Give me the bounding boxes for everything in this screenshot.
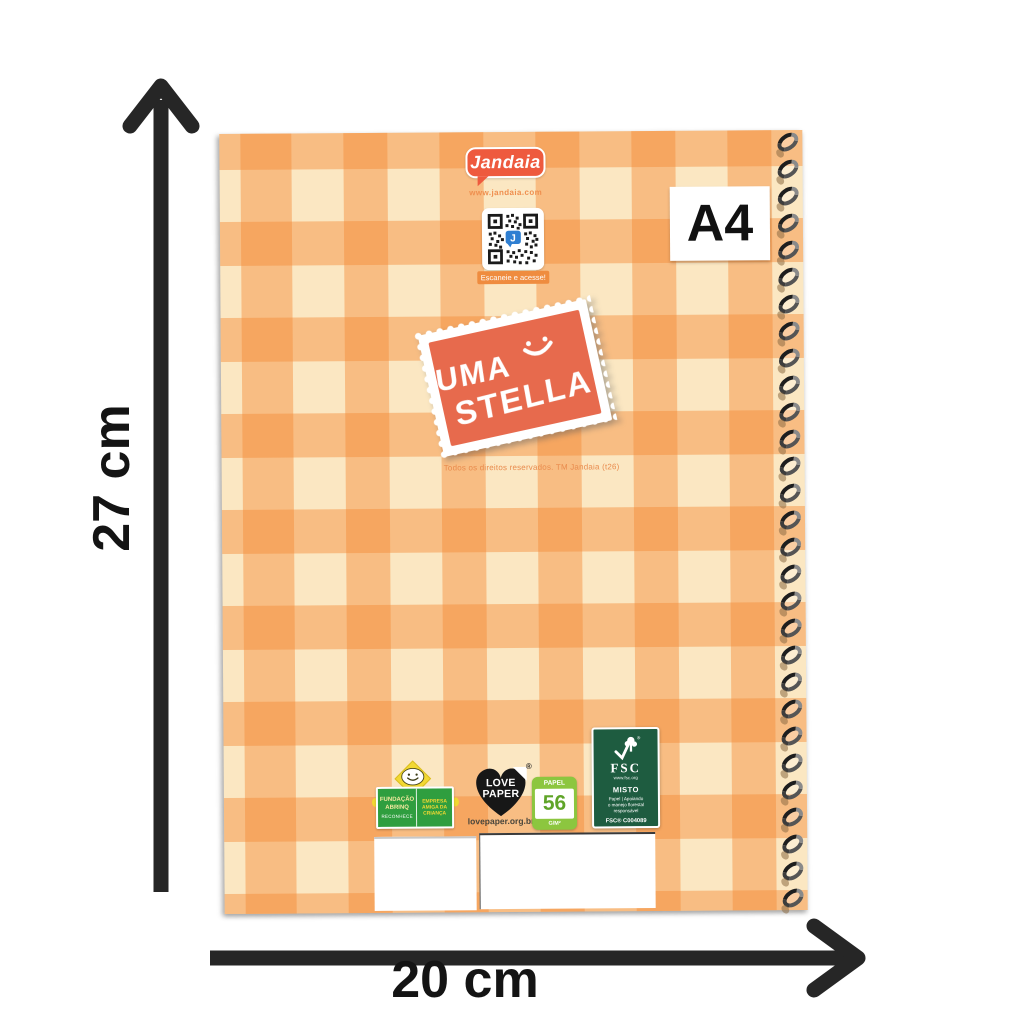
qr-code: J: [482, 208, 544, 270]
abrinq-seal: FUNDAÇÃO ABRINQ RECONHECE EMPRESA AMIGA …: [376, 765, 458, 830]
spiral-coil: [776, 399, 804, 426]
spiral-coil: [775, 318, 803, 345]
fsc-license-code: FSC® C004089: [606, 818, 647, 824]
width-label: 20 cm: [290, 950, 640, 1010]
fsc-description: Papel | Apoiando o manejo florestal resp…: [608, 796, 644, 814]
spiral-coil: [778, 723, 806, 750]
brand-website: www.jandaia.com: [452, 188, 560, 198]
paper-weight-seal: PAPEL 56 G/M²: [532, 777, 577, 830]
spiral-coil: [775, 264, 803, 291]
spiral-coil: [776, 426, 804, 453]
spiral-coil: [778, 750, 806, 777]
fsc-tree-icon: ®: [610, 734, 640, 760]
product-image: 27 cm 20 cm Jandaia www.jandaia.com: [0, 0, 1024, 1024]
love-paper-text: LOVE PAPER: [471, 778, 531, 800]
spiral-coil: [777, 588, 805, 615]
qr-caption: Escaneie e acesse!: [477, 271, 549, 285]
rights-text: Todos os direitos reservados. TM Jandaia…: [380, 462, 684, 473]
spiral-coil: [779, 831, 807, 858]
fsc-desc-line3: responsável: [608, 808, 644, 814]
uma-stella-stamp: UMA STELLA: [418, 299, 613, 457]
paper-weight-unit: G/M²: [535, 819, 574, 828]
spiral-coil: [778, 669, 806, 696]
svg-text:®: ®: [637, 734, 641, 740]
notebook-cover: Jandaia www.jandaia.com: [219, 130, 807, 914]
spiral-coil: [774, 183, 802, 210]
fsc-label: ® FSC www.fsc.org MISTO Papel | Apoiando…: [591, 727, 660, 828]
spiral-coil: [779, 858, 807, 885]
qr-code-graphic: J: [486, 212, 540, 266]
spiral-coil: [775, 345, 803, 372]
spiral-binding: [770, 134, 807, 906]
size-badge: A4: [670, 186, 771, 261]
spiral-coil: [774, 129, 802, 156]
spiral-coil: [776, 480, 804, 507]
spiral-coil: [777, 561, 805, 588]
spiral-coil: [777, 534, 805, 561]
qr-center-letter: J: [510, 233, 516, 244]
spiral-coil: [776, 453, 804, 480]
registered-mark: ®: [526, 762, 532, 771]
spiral-coil: [775, 237, 803, 264]
spiral-coil: [774, 210, 802, 237]
spiral-coil: [776, 507, 804, 534]
smiley-icon: [519, 332, 561, 364]
blank-label-right: [479, 832, 656, 909]
spiral-coil: [775, 291, 803, 318]
spiral-coil: [776, 372, 804, 399]
spiral-coil: [778, 777, 806, 804]
abrinq-org-line2: ABRINQ: [385, 804, 409, 811]
abrinq-org-line1: FUNDAÇÃO: [380, 797, 414, 804]
spiral-coil: [779, 885, 807, 912]
jandaia-logo: Jandaia: [465, 147, 545, 179]
abrinq-bottom-text: RECONHECE: [381, 814, 413, 819]
abrinq-plate: FUNDAÇÃO ABRINQ RECONHECE EMPRESA AMIGA …: [376, 786, 454, 829]
jandaia-logo-text: Jandaia: [470, 152, 541, 173]
fsc-type: MISTO: [613, 785, 639, 794]
abrinq-right-line3: CRIANÇA: [423, 811, 446, 817]
paper-weight-value: 56: [535, 789, 574, 819]
spiral-coil: [777, 615, 805, 642]
love-paper-logo: LOVE PAPER ®: [471, 765, 531, 821]
fsc-wordmark: FSC: [610, 761, 641, 774]
spiral-coil: [778, 696, 806, 723]
spiral-coil: [777, 642, 805, 669]
spiral-coil: [774, 156, 802, 183]
fsc-site: www.fsc.org: [614, 775, 638, 780]
blank-label-left: [374, 836, 477, 911]
paper-weight-header: PAPEL: [535, 779, 574, 789]
height-label: 27 cm: [77, 378, 147, 578]
abrinq-smiley-icon: [398, 768, 428, 786]
spiral-coil: [779, 804, 807, 831]
love-paper-word2: PAPER: [471, 789, 531, 800]
